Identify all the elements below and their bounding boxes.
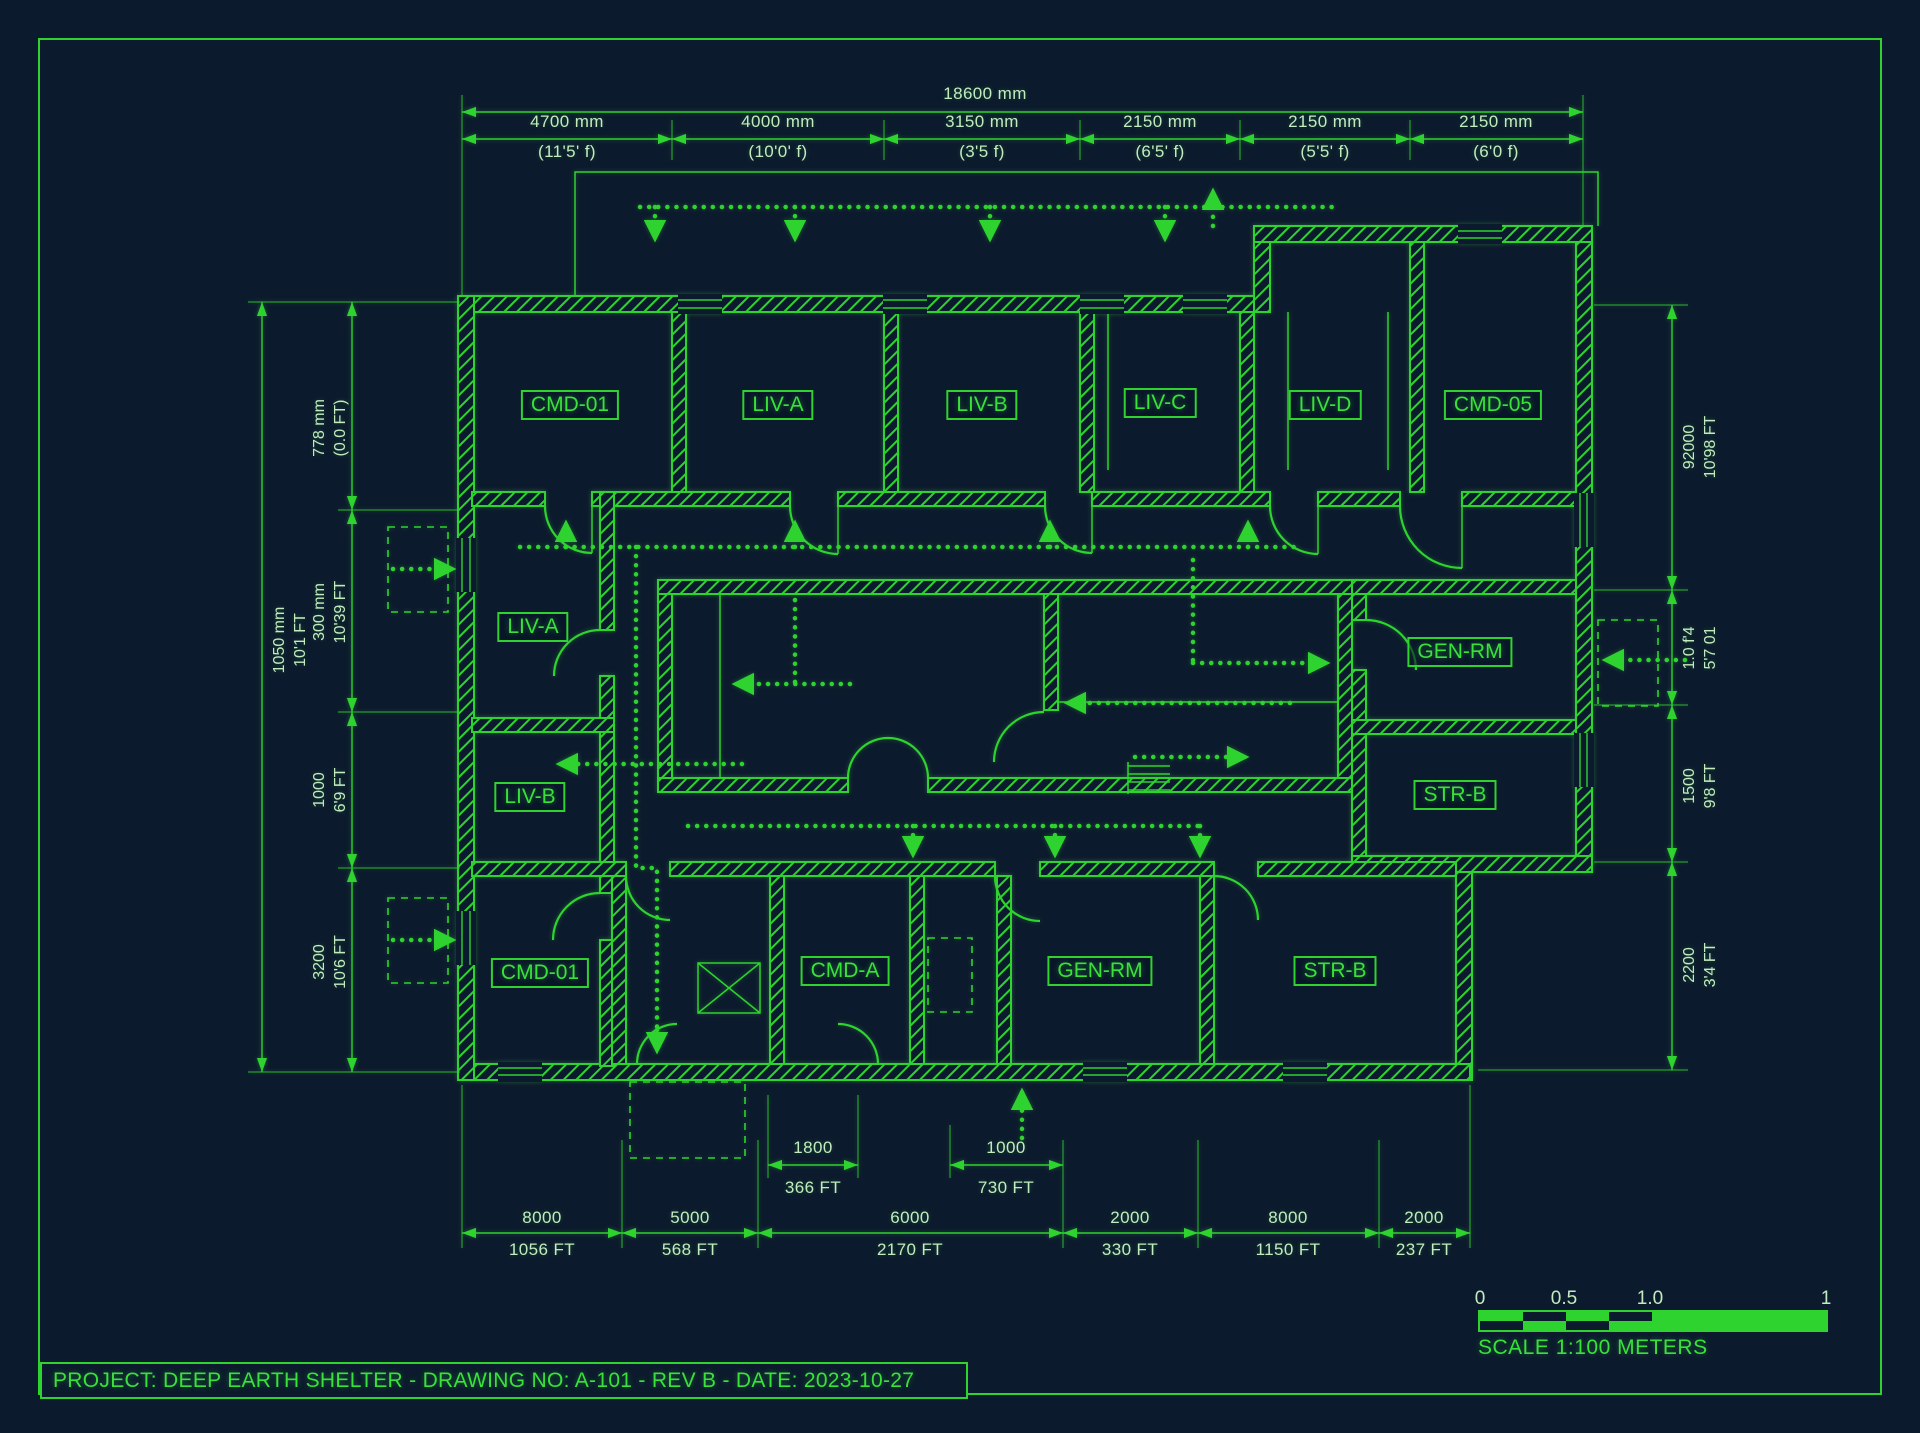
dim-inner-1-ft: 730 FT	[978, 1178, 1034, 1198]
scale-strip	[1478, 1310, 1828, 1332]
dim-left-2-ft: 6'9 FT	[330, 768, 351, 813]
room-label-cmd-05: CMD-05	[1444, 390, 1542, 420]
dim-bottom-2-mm: 6000	[890, 1208, 929, 1228]
dim-right-2: 1500 9'8 FT	[1679, 764, 1721, 809]
dashed-exterior-pad	[630, 1082, 745, 1158]
floor-plan-linework	[0, 0, 1920, 1433]
dim-top-overall: 18600 mm	[943, 84, 1027, 104]
dim-top-4-ft: (5'5' f)	[1300, 142, 1349, 162]
scale-tick-labels: 0 0.5 1.0 1	[1478, 1288, 1830, 1308]
room-label-str-b-mid: STR-B	[1414, 780, 1497, 810]
dim-top-4-mm: 2150 mm	[1288, 112, 1362, 132]
dim-left-2-mm: 1000	[309, 768, 330, 813]
dim-left-overall-mm: 1050 mm	[269, 607, 290, 674]
room-label-gen-rm-bot: GEN-RM	[1047, 956, 1152, 986]
dim-inner-0-mm: 1800	[793, 1138, 832, 1158]
dim-right-1-ft: 5'7 01	[1700, 626, 1721, 669]
dim-left-0: 778 mm (0.0 FT)	[309, 399, 351, 457]
scale-tick-0-5: 0.5	[1551, 1288, 1577, 1310]
room-label-liv-b-top: LIV-B	[946, 390, 1017, 420]
dim-left-3: 3200 10'6 FT	[309, 935, 351, 989]
dim-left-0-ft: (0.0 FT)	[330, 399, 351, 457]
dim-left-3-ft: 10'6 FT	[330, 935, 351, 989]
dim-bottom-4-ft: 1150 FT	[1256, 1240, 1321, 1260]
dim-top-2-ft: (3'5 f)	[959, 142, 1005, 162]
room-label-cmd-01-top: CMD-01	[521, 390, 619, 420]
dim-left-2: 1000 6'9 FT	[309, 768, 351, 813]
dim-top-1-ft: (10'0' f)	[748, 142, 807, 162]
room-label-gen-rm-mid: GEN-RM	[1407, 637, 1512, 667]
dim-left-overall-ft: 10'1 FT	[290, 607, 311, 674]
dim-top-0-mm: 4700 mm	[530, 112, 604, 132]
scale-tick-1-0: 1.0	[1637, 1288, 1663, 1310]
dim-bottom-5-ft: 237 FT	[1396, 1240, 1452, 1260]
dim-bottom-0-ft: 1056 FT	[509, 1240, 575, 1260]
dim-bottom-2-ft: 2170 FT	[877, 1240, 943, 1260]
dim-right-3: 2200 3'4 FT	[1679, 943, 1721, 988]
dim-right-1: 1.0 f'4 5'7 01	[1679, 626, 1721, 669]
blueprint-canvas: CMD-01 LIV-A LIV-B LIV-C LIV-D CMD-05 LI…	[0, 0, 1920, 1433]
dim-top-0-ft: (11'5' f)	[538, 142, 596, 162]
dim-right-3-mm: 2200	[1679, 943, 1700, 988]
room-label-liv-d: LIV-D	[1289, 390, 1362, 420]
room-label-liv-b-mid: LIV-B	[494, 782, 565, 812]
dim-right-0-ft: 10'98 FT	[1700, 416, 1721, 479]
scale-tick-1: 1	[1821, 1288, 1832, 1310]
dim-right-0: 92000 10'98 FT	[1679, 416, 1721, 479]
dim-right-3-ft: 3'4 FT	[1700, 943, 1721, 988]
dim-bottom-3-ft: 330 FT	[1102, 1240, 1158, 1260]
dim-bottom-3-mm: 2000	[1110, 1208, 1149, 1228]
room-label-liv-c: LIV-C	[1124, 388, 1197, 418]
scale-bar: 0 0.5 1.0 1 SCALE 1:100 METERS	[1478, 1288, 1830, 1364]
dim-top-2-mm: 3150 mm	[945, 112, 1019, 132]
dim-right-1-mm: 1.0 f'4	[1679, 626, 1700, 669]
dim-bottom-5-mm: 2000	[1404, 1208, 1443, 1228]
dim-bottom-4-mm: 8000	[1268, 1208, 1307, 1228]
dashed-shower	[928, 938, 972, 1012]
dim-right-2-ft: 9'8 FT	[1700, 764, 1721, 809]
shaft-x-box	[698, 963, 760, 1013]
room-label-cmd-a: CMD-A	[801, 956, 890, 986]
dim-inner-0-ft: 366 FT	[785, 1178, 841, 1198]
dim-top-3-ft: (6'5' f)	[1135, 142, 1184, 162]
dim-right-2-mm: 1500	[1679, 764, 1700, 809]
dim-inner-1-mm: 1000	[986, 1138, 1025, 1158]
room-label-str-b-bot: STR-B	[1294, 956, 1377, 986]
dim-right-0-mm: 92000	[1679, 416, 1700, 479]
dim-top-3-mm: 2150 mm	[1123, 112, 1197, 132]
scale-caption: SCALE 1:100 METERS	[1478, 1336, 1830, 1360]
room-label-liv-a-mid: LIV-A	[497, 612, 568, 642]
title-block-text: PROJECT: DEEP EARTH SHELTER - DRAWING NO…	[53, 1369, 914, 1393]
dim-top-5-ft: (6'0 f)	[1473, 142, 1519, 162]
dim-left-1-mm: 300 mm	[309, 581, 330, 644]
dim-left-3-mm: 3200	[309, 935, 330, 989]
dim-top-1-mm: 4000 mm	[741, 112, 815, 132]
dim-bottom-1-ft: 568 FT	[662, 1240, 718, 1260]
dim-top-5-mm: 2150 mm	[1459, 112, 1533, 132]
dim-left-1-ft: 10'39 FT	[330, 581, 351, 644]
title-block: PROJECT: DEEP EARTH SHELTER - DRAWING NO…	[40, 1362, 968, 1399]
room-label-liv-a-top: LIV-A	[742, 390, 813, 420]
dim-left-0-mm: 778 mm	[309, 399, 330, 457]
dim-left-1: 300 mm 10'39 FT	[309, 581, 351, 644]
dashed-right-entry	[1598, 620, 1658, 706]
dim-bottom-1-mm: 5000	[670, 1208, 709, 1228]
dim-bottom-0-mm: 8000	[522, 1208, 561, 1228]
dim-left-overall: 1050 mm 10'1 FT	[269, 607, 311, 674]
scale-tick-0: 0	[1475, 1288, 1486, 1310]
room-label-cmd-01-bot: CMD-01	[491, 958, 589, 988]
